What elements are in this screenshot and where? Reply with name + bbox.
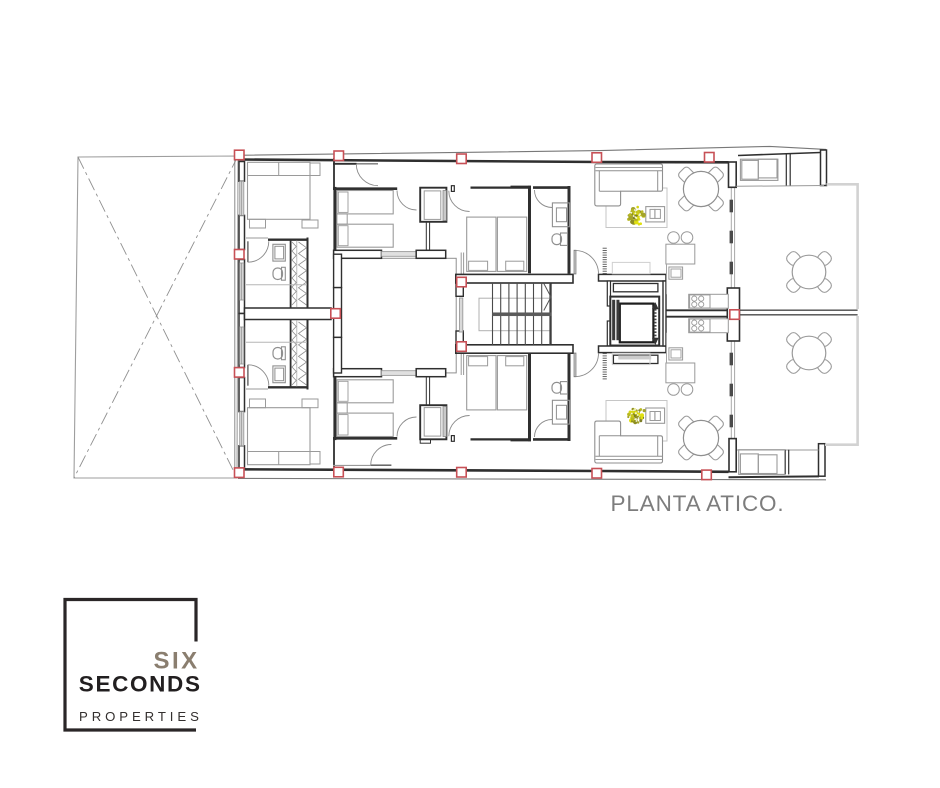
svg-text:SIX: SIX bbox=[154, 648, 200, 675]
svg-text:SECONDS: SECONDS bbox=[79, 672, 202, 697]
svg-text:PLANTA ATICO.: PLANTA ATICO. bbox=[611, 491, 785, 516]
svg-text:PROPERTIES: PROPERTIES bbox=[79, 709, 203, 724]
